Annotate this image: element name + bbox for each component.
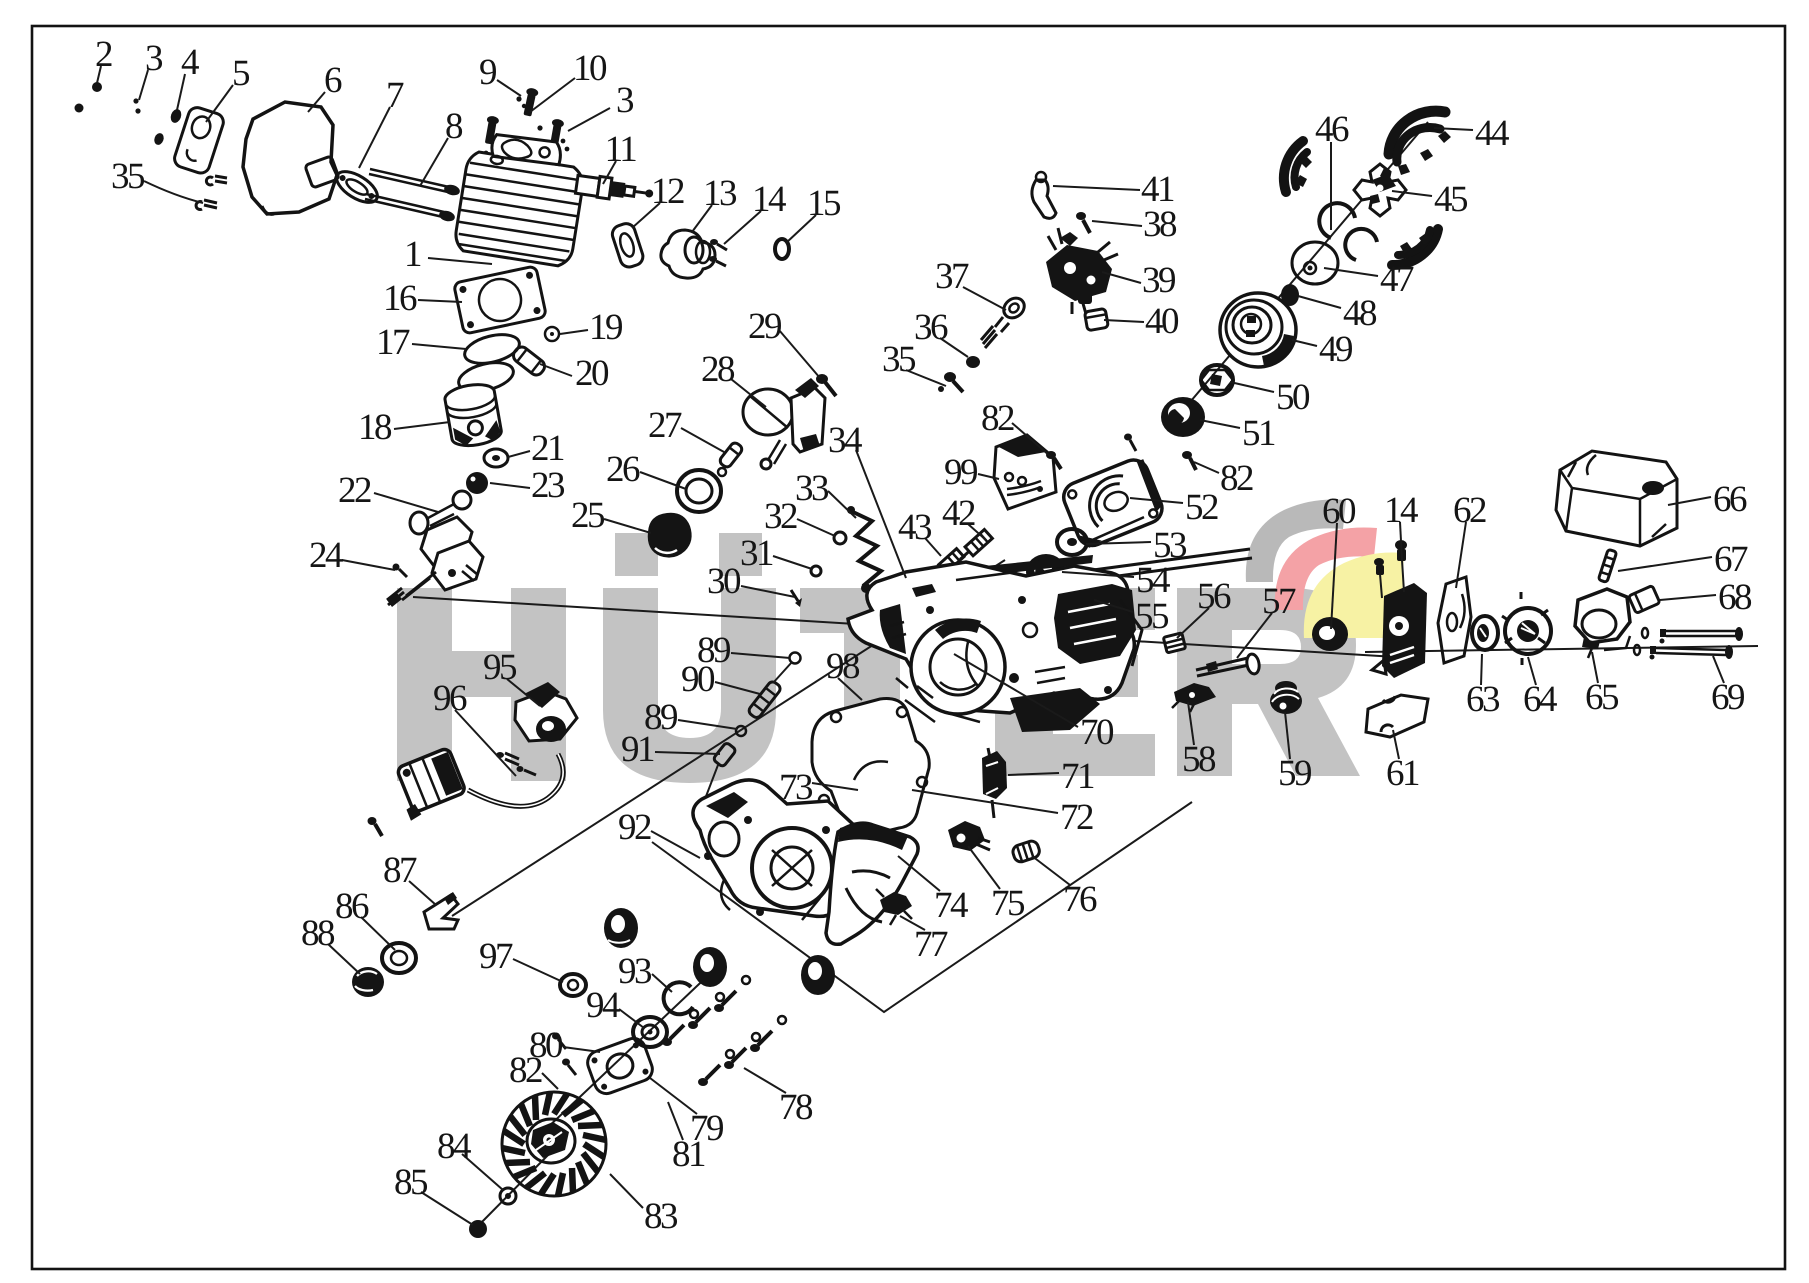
svg-text:9: 9: [479, 52, 496, 93]
svg-text:57: 57: [1262, 581, 1296, 622]
svg-text:6: 6: [324, 60, 342, 101]
svg-text:14: 14: [752, 179, 786, 220]
svg-text:38: 38: [1143, 204, 1177, 245]
svg-text:67: 67: [1714, 539, 1748, 580]
svg-text:16: 16: [383, 278, 417, 319]
svg-text:55: 55: [1135, 596, 1169, 637]
svg-text:3: 3: [616, 80, 634, 121]
svg-text:92: 92: [618, 807, 651, 848]
svg-text:35: 35: [111, 156, 145, 197]
svg-text:82: 82: [509, 1050, 542, 1091]
svg-text:60: 60: [1322, 491, 1356, 532]
svg-text:85: 85: [394, 1162, 428, 1203]
svg-text:94: 94: [586, 985, 620, 1026]
svg-text:43: 43: [898, 507, 932, 548]
svg-text:97: 97: [479, 936, 513, 977]
svg-text:51: 51: [1242, 413, 1275, 454]
svg-text:34: 34: [828, 420, 862, 461]
svg-text:15: 15: [807, 183, 841, 224]
svg-text:19: 19: [589, 307, 622, 348]
svg-text:5: 5: [232, 53, 250, 94]
svg-text:81: 81: [672, 1134, 705, 1175]
svg-text:99: 99: [944, 452, 977, 493]
svg-text:82: 82: [981, 398, 1014, 439]
svg-text:21: 21: [531, 428, 564, 469]
svg-text:13: 13: [703, 173, 737, 214]
svg-text:59: 59: [1278, 753, 1311, 794]
svg-text:7: 7: [386, 75, 404, 116]
svg-text:28: 28: [701, 349, 735, 390]
svg-text:24: 24: [309, 535, 343, 576]
svg-text:72: 72: [1060, 797, 1093, 838]
svg-text:12: 12: [651, 171, 684, 212]
svg-text:74: 74: [934, 885, 968, 926]
svg-text:49: 49: [1319, 329, 1352, 370]
svg-text:10: 10: [573, 48, 607, 89]
svg-text:62: 62: [1453, 490, 1486, 531]
svg-text:98: 98: [826, 646, 860, 687]
svg-text:27: 27: [648, 405, 682, 446]
svg-text:39: 39: [1142, 260, 1175, 301]
svg-text:22: 22: [338, 470, 371, 511]
svg-text:47: 47: [1380, 259, 1414, 300]
svg-text:68: 68: [1718, 577, 1752, 618]
svg-text:32: 32: [764, 496, 797, 537]
svg-text:96: 96: [433, 678, 467, 719]
svg-text:77: 77: [914, 924, 948, 965]
svg-text:63: 63: [1466, 679, 1500, 720]
svg-text:20: 20: [575, 353, 609, 394]
svg-text:30: 30: [707, 561, 741, 602]
svg-text:25: 25: [571, 495, 605, 536]
svg-text:87: 87: [383, 850, 417, 891]
svg-text:36: 36: [914, 307, 948, 348]
svg-text:1: 1: [404, 234, 421, 275]
svg-text:29: 29: [748, 306, 781, 347]
svg-text:73: 73: [779, 767, 813, 808]
svg-text:64: 64: [1523, 679, 1557, 720]
svg-text:82: 82: [1220, 458, 1253, 499]
svg-text:40: 40: [1145, 301, 1179, 342]
svg-text:48: 48: [1343, 293, 1377, 334]
svg-text:52: 52: [1185, 487, 1218, 528]
svg-text:26: 26: [606, 449, 640, 490]
svg-text:69: 69: [1711, 677, 1744, 718]
svg-text:78: 78: [779, 1087, 813, 1128]
svg-text:35: 35: [882, 339, 916, 380]
svg-text:56: 56: [1197, 576, 1231, 617]
svg-text:4: 4: [181, 42, 199, 83]
svg-text:61: 61: [1386, 753, 1419, 794]
svg-text:17: 17: [376, 322, 410, 363]
svg-text:18: 18: [358, 407, 392, 448]
svg-text:41: 41: [1141, 169, 1174, 210]
svg-text:14: 14: [1384, 490, 1418, 531]
svg-text:50: 50: [1276, 377, 1310, 418]
svg-text:76: 76: [1063, 879, 1097, 920]
svg-text:11: 11: [605, 129, 637, 170]
svg-text:75: 75: [991, 883, 1025, 924]
svg-text:42: 42: [942, 493, 975, 534]
svg-text:88: 88: [301, 913, 335, 954]
svg-text:37: 37: [935, 256, 969, 297]
svg-text:31: 31: [740, 533, 773, 574]
svg-text:86: 86: [335, 886, 369, 927]
svg-text:90: 90: [681, 659, 715, 700]
svg-text:44: 44: [1475, 113, 1509, 154]
svg-text:45: 45: [1434, 179, 1468, 220]
svg-text:23: 23: [531, 465, 565, 506]
svg-text:66: 66: [1713, 479, 1747, 520]
svg-text:3: 3: [145, 38, 163, 79]
svg-text:58: 58: [1182, 739, 1216, 780]
svg-text:93: 93: [618, 951, 652, 992]
svg-text:71: 71: [1061, 756, 1094, 797]
svg-text:84: 84: [437, 1126, 471, 1167]
svg-text:54: 54: [1136, 560, 1170, 601]
svg-text:83: 83: [644, 1196, 678, 1237]
svg-text:95: 95: [483, 647, 517, 688]
svg-text:2: 2: [95, 34, 112, 75]
svg-text:65: 65: [1585, 677, 1619, 718]
svg-text:33: 33: [795, 468, 829, 509]
svg-text:46: 46: [1315, 109, 1349, 150]
svg-text:8: 8: [445, 106, 463, 147]
svg-text:70: 70: [1080, 712, 1114, 753]
svg-text:91: 91: [621, 729, 654, 770]
